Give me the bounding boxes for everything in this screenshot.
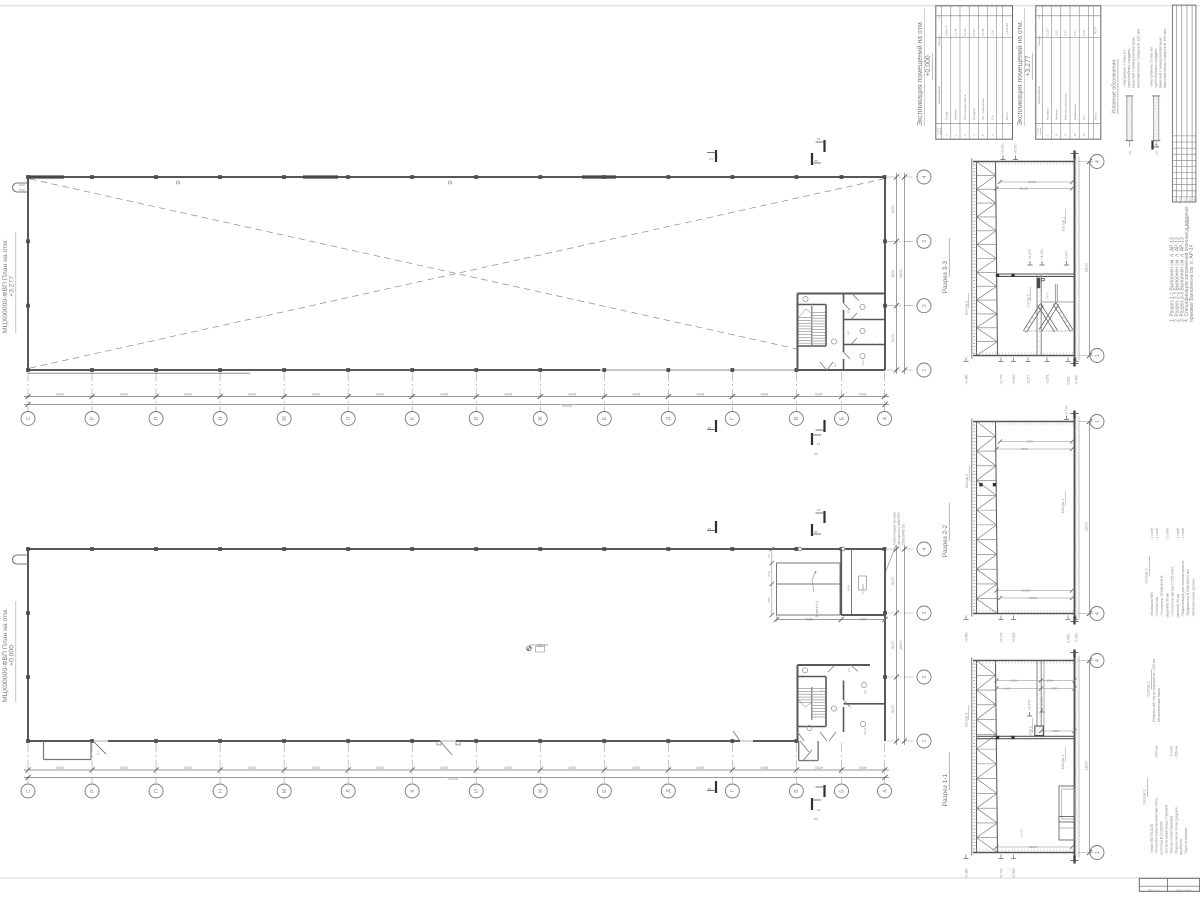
svg-text:0.000: 0.000 (1066, 634, 1070, 642)
svg-text:Кол.уч: Кол.уч (1179, 197, 1181, 204)
svg-text:8.74: 8.74 (1064, 30, 1068, 36)
svg-text:Коридор: Коридор (1045, 108, 1049, 120)
svg-text:0.000: 0.000 (1065, 251, 1069, 260)
svg-text:Лестничная клетка: Лестничная клетка (963, 94, 967, 120)
svg-text:4: 4 (1095, 612, 1101, 615)
svg-text:6000: 6000 (56, 766, 64, 770)
svg-text:А: А (882, 789, 888, 793)
svg-text:6000: 6000 (504, 766, 512, 770)
svg-text:помещ.: помещ. (940, 127, 942, 135)
svg-text:4: 4 (922, 547, 928, 550)
svg-text:Н: Н (218, 789, 224, 793)
svg-text:1: 1 (1095, 354, 1101, 357)
svg-text:18000: 18000 (1084, 263, 1088, 273)
svg-text:2: 2 (922, 675, 928, 678)
svg-text:Д-6: Д-6 (863, 689, 867, 694)
svg-text:Экспликация помещений на отм.: Экспликация помещений на отм. (916, 20, 924, 126)
svg-text:- Сетка из арматурных стержней: - Сетка из арматурных стержней (1165, 805, 1169, 855)
svg-text:6000: 6000 (312, 766, 320, 770)
svg-text:18669: 18669 (1028, 596, 1037, 600)
svg-text:6000: 6000 (120, 766, 128, 770)
svg-text:Состав 3: Состав 3 (965, 301, 969, 315)
svg-text:120: 120 (1128, 150, 1132, 155)
svg-text:+5.770: +5.770 (999, 868, 1003, 878)
svg-text:Разрез 2-2: Разрез 2-2 (942, 524, 949, 557)
svg-text:Состав 1: Состав 1 (1062, 217, 1066, 231)
svg-text:- 1 слой: - 1 слой (1181, 528, 1185, 540)
svg-text:6000: 6000 (248, 766, 256, 770)
svg-text:9.12: 9.12 (1055, 30, 1059, 36)
svg-text:билд п чтырь: билд п чтырь (1175, 889, 1192, 893)
svg-text:11: 11 (1082, 133, 1086, 136)
svg-text:6000: 6000 (184, 766, 192, 770)
svg-text:6000: 6000 (696, 766, 704, 770)
svg-text:Пом.4: Пом.4 (861, 358, 865, 366)
svg-text:Состав 3: Состав 3 (1145, 569, 1149, 584)
svg-text:Состав 1: Состав 1 (1061, 499, 1065, 513)
svg-text:+5.500: +5.500 (1012, 632, 1016, 642)
svg-text:+9.360: +9.360 (964, 868, 968, 878)
svg-text:18000: 18000 (899, 640, 903, 650)
svg-text:4000: 4000 (815, 392, 823, 396)
svg-text:А: А (882, 416, 888, 420)
svg-text:Д-2: Д-2 (846, 330, 850, 335)
svg-text:- Геотекстиль: - Геотекстиль (1155, 597, 1159, 618)
svg-text:Д-4: Д-4 (819, 687, 823, 692)
svg-text:4: 4 (1095, 659, 1101, 662)
svg-text:22748: 22748 (1021, 589, 1030, 593)
svg-text:13.49: 13.49 (954, 28, 958, 36)
svg-text:Б: Б (839, 789, 845, 793)
svg-text:+1.051: +1.051 (1045, 374, 1049, 384)
svg-text:17285: 17285 (1028, 845, 1037, 849)
svg-text:К: К (410, 417, 416, 420)
svg-text:- Пленка полиэтиленовая: - Пленка полиэтиленовая (1169, 816, 1173, 855)
svg-text:4000: 4000 (859, 617, 866, 621)
svg-text:100: 100 (1155, 150, 1159, 155)
svg-text:+5.770: +5.770 (999, 632, 1003, 642)
svg-text:6962: 6962 (1052, 729, 1059, 733)
svg-text:+5.770: +5.770 (999, 374, 1003, 384)
svg-text:П-3300: П-3300 (861, 584, 865, 594)
svg-text:6000: 6000 (568, 392, 576, 396)
svg-text:6000: 6000 (440, 766, 448, 770)
svg-text:2000: 2000 (767, 571, 771, 577)
svg-text:+5.500: +5.500 (1012, 374, 1016, 384)
svg-text:Подп: Подп (1194, 197, 1196, 203)
svg-text:6000: 6000 (632, 766, 640, 770)
svg-text:наполнителем толщиной 120 мм: наполнителем толщиной 120 мм (1135, 29, 1140, 88)
svg-text:18000: 18000 (1084, 761, 1088, 771)
svg-text:К: К (410, 789, 416, 792)
svg-text:Подп. и дата: Подп. и дата (1186, 216, 1190, 232)
svg-text:0.000: 0.000 (1065, 405, 1069, 414)
svg-text:(нижний) 50 мм: (нижний) 50 мм (1176, 593, 1180, 617)
svg-text:- 1 слой: - 1 слой (1155, 528, 1159, 540)
svg-text:1080.74: 1080.74 (945, 25, 949, 36)
svg-text:80000: 80000 (448, 776, 458, 780)
svg-text:6000: 6000 (184, 392, 192, 396)
svg-text:Состав 2: Состав 2 (1026, 294, 1030, 307)
svg-text:Номер: Номер (1037, 127, 1039, 135)
svg-text:-1.051: -1.051 (1040, 697, 1044, 707)
svg-text:Б: Б (839, 416, 845, 420)
svg-text:1850: 1850 (767, 597, 771, 603)
svg-text:+0.000: +0.000 (925, 55, 932, 76)
svg-text:Склад: Склад (945, 111, 949, 120)
svg-text:Состав 1: Состав 1 (1143, 790, 1147, 805)
svg-text:1: 1 (922, 739, 928, 742)
svg-text:Разрез 1-1: Разрез 1-1 (942, 773, 949, 806)
svg-text:6000: 6000 (376, 766, 384, 770)
svg-text:+3.277: +3.277 (1028, 249, 1032, 260)
svg-text:7560: 7560 (1010, 679, 1017, 683)
svg-text:6000: 6000 (632, 392, 640, 396)
svg-text:Д-1: Д-1 (96, 750, 100, 755)
svg-text:Лист: Лист (1185, 198, 1187, 203)
svg-text:+4.500: +4.500 (1014, 143, 1018, 154)
svg-text:6000: 6000 (891, 577, 895, 585)
svg-text:крупности): крупности) (1179, 839, 1183, 855)
svg-text:Номер: Номер (937, 127, 939, 135)
svg-text:Пом.6: Пом.6 (863, 727, 867, 735)
svg-text:И: И (474, 416, 480, 420)
svg-text:Состав 3: Состав 3 (965, 474, 969, 488)
svg-text:+9.360: +9.360 (964, 374, 968, 384)
svg-text:6000: 6000 (696, 392, 704, 396)
svg-text:6575: 6575 (1003, 687, 1010, 691)
svg-text:- 200 мм: - 200 мм (1174, 745, 1178, 759)
svg-text:Изм: Изм (1175, 198, 1177, 203)
svg-text:Итого: Итого (1005, 112, 1009, 120)
svg-text:Д-3: Д-3 (833, 362, 837, 367)
svg-text:9118: 9118 (1021, 447, 1028, 451)
svg-text:4000: 4000 (859, 392, 867, 396)
svg-text:+3.277: +3.277 (8, 276, 15, 297)
svg-text:Наименование: Наименование (1037, 85, 1041, 104)
svg-text:Состав 1: Состав 1 (1061, 755, 1065, 769)
svg-text:Герметизация проема: Герметизация проема (893, 512, 897, 545)
svg-text:- 2 слоя: - 2 слоя (1169, 746, 1173, 758)
svg-text:тип 02: тип 02 (1020, 828, 1024, 837)
svg-text:помещ.: помещ. (1040, 127, 1042, 135)
svg-text:1436.39: 1436.39 (1005, 23, 1009, 34)
svg-text:10: 10 (1073, 133, 1077, 137)
svg-text:М: М (282, 416, 288, 420)
svg-text:Н: Н (218, 416, 224, 420)
svg-text:Кол.: Кол. (939, 14, 941, 19)
svg-text:- Металлическая балка: - Металлическая балка (1157, 688, 1161, 724)
svg-text:Е: Е (602, 789, 608, 793)
svg-text:3: 3 (922, 240, 928, 243)
svg-text:С: С (26, 416, 32, 420)
svg-text:- Железобетонная монолитная пл: - Железобетонная монолитная плита (1155, 798, 1159, 855)
svg-text:- Утеплитель Экстра У=100 кг/м: - Утеплитель Экстра У=100 кг/м3, (1171, 566, 1175, 617)
svg-text:- Утеплитель ТЕХНОРУФ В,: - Утеплитель ТЕХНОРУФ В, (1160, 575, 1164, 618)
svg-text:1.58: 1.58 (1082, 30, 1086, 36)
svg-text:- Подосыпка из песка (средней: - Подосыпка из песка (средней (1174, 807, 1178, 855)
svg-text:Площадь: Площадь (938, 35, 941, 46)
svg-text:Итого: Итого (1093, 112, 1097, 120)
svg-text:6000: 6000 (376, 392, 384, 396)
svg-text:6000: 6000 (891, 705, 895, 713)
svg-text:И: И (474, 789, 480, 793)
svg-text:Кабинет: Кабинет (954, 108, 958, 120)
svg-text:2: 2 (1155, 144, 1159, 146)
svg-text:Д-2: Д-2 (846, 308, 850, 313)
svg-text:80000: 80000 (562, 403, 572, 407)
svg-text:40.67: 40.67 (1093, 26, 1097, 34)
svg-text:6000: 6000 (440, 392, 448, 396)
svg-text:Состав 3: Состав 3 (965, 713, 969, 727)
svg-text:- Мембрана ПВХ: - Мембрана ПВХ (1150, 591, 1154, 617)
svg-text:В: В (794, 789, 800, 793)
svg-text:6000: 6000 (120, 392, 128, 396)
svg-text:4000: 4000 (859, 766, 867, 770)
svg-text:- Грунт основания: - Грунт основания (1184, 827, 1188, 855)
svg-text:- Профнастил Н 60х845х0.8 мм: - Профнастил Н 60х845х0.8 мм (1186, 569, 1190, 618)
svg-text:1.58: 1.58 (990, 30, 994, 36)
svg-text:(верхний) 50 мм: (верхний) 50 мм (1165, 592, 1169, 617)
svg-text:4: 4 (922, 175, 928, 178)
svg-text:Ж: Ж (538, 416, 544, 421)
svg-text:4: 4 (1095, 160, 1101, 163)
svg-text:6000: 6000 (805, 617, 812, 621)
svg-text:22748: 22748 (1019, 187, 1028, 191)
svg-text:- 1 слой: - 1 слой (1150, 528, 1154, 540)
svg-text:6000: 6000 (56, 392, 64, 396)
svg-text:-0.450: -0.450 (1074, 375, 1078, 384)
svg-text:Разрез 3-3: Разрез 3-3 (942, 260, 949, 293)
svg-text:4111: 4111 (1027, 440, 1034, 444)
svg-text:Площадь: Площадь (1038, 35, 1041, 46)
svg-text:Коридор: Коридор (972, 108, 976, 120)
svg-text:П: П (154, 416, 160, 420)
svg-text:Кабинет: Кабинет (1055, 108, 1059, 120)
svg-text:18000: 18000 (899, 269, 903, 279)
svg-text:18000: 18000 (1084, 522, 1088, 532)
svg-text:- 200 мм: - 200 мм (1155, 745, 1159, 759)
svg-text:+5.500: +5.500 (1012, 868, 1016, 878)
svg-text:1: 1 (1095, 851, 1101, 854)
svg-text:+3.277: +3.277 (1026, 374, 1030, 384)
svg-text:8.74: 8.74 (1073, 30, 1077, 36)
svg-text:4633: 4633 (1046, 679, 1053, 683)
svg-text:Р: Р (90, 416, 96, 420)
svg-text:Д: Д (666, 789, 672, 793)
svg-text:в. уч мод: в. уч мод (1148, 889, 1159, 892)
svg-text:№док: №док (1189, 198, 1192, 204)
svg-text:С/у: С/у (990, 115, 994, 120)
svg-text:Ворота Н.1: Ворота Н.1 (815, 601, 819, 618)
svg-text:тип 2: тип 2 (1045, 292, 1049, 299)
svg-text:Кол.: Кол. (1039, 14, 1041, 19)
svg-text:+3.277: +3.277 (1025, 55, 1032, 76)
svg-text:12.52: 12.52 (972, 28, 976, 36)
svg-text:Е: Е (602, 416, 608, 420)
svg-text:Л: Л (346, 789, 352, 792)
svg-text:- Топинг RETFLOOR: - Топинг RETFLOOR (1150, 823, 1154, 855)
svg-text:6000: 6000 (504, 392, 512, 396)
svg-text:Наименование: Наименование (937, 85, 941, 104)
svg-text:0.000: 0.000 (1066, 376, 1070, 384)
svg-text:6000: 6000 (760, 392, 768, 396)
svg-text:6000: 6000 (891, 641, 895, 649)
svg-text:12.52: 12.52 (1045, 28, 1049, 36)
svg-text:Д-5: Д-5 (847, 667, 851, 672)
svg-text:6000: 6000 (891, 205, 895, 213)
svg-text:М: М (282, 789, 288, 793)
svg-text:Тех. помещение: Тех. помещение (981, 98, 985, 120)
svg-text:3: 3 (922, 611, 928, 614)
svg-text:150: 150 (767, 553, 771, 558)
svg-text:4500: 4500 (847, 584, 851, 591)
svg-text:Ж: Ж (538, 788, 544, 793)
svg-text:- Сборные ж/б плиты перекрытия: - Сборные ж/б плиты перекрытия - 220 мм (1152, 658, 1156, 724)
svg-text:15.35: 15.35 (963, 28, 967, 36)
svg-text:Р: Р (90, 789, 96, 793)
svg-text:13.49: 13.49 (981, 28, 985, 36)
svg-text:Д: Д (666, 416, 672, 420)
svg-text:1: 1 (1095, 420, 1101, 423)
svg-text:Г: Г (730, 789, 736, 792)
svg-text:6000: 6000 (891, 334, 895, 342)
svg-text:Условные обозначения: Условные обозначения (1112, 60, 1118, 114)
svg-text:проемов Выполнена см. л. АР-14: проемов Выполнена см. л. АР-14 (1189, 244, 1195, 322)
svg-text:Состав 2: Состав 2 (1029, 726, 1033, 739)
svg-text:6000: 6000 (891, 270, 895, 278)
svg-text:- Металлические прогоны: - Металлические прогоны (1191, 578, 1195, 618)
svg-text:+5.770: +5.770 (1001, 143, 1005, 154)
svg-text:4000: 4000 (815, 766, 823, 770)
svg-text:- 3 слоя: - 3 слоя (1165, 528, 1169, 540)
svg-text:18669: 18669 (1027, 180, 1036, 184)
svg-text:Комната персонала: Комната персонала (1064, 93, 1068, 120)
svg-text:2: 2 (922, 304, 928, 307)
svg-text:6000: 6000 (312, 392, 320, 396)
svg-text:1: 1 (922, 368, 928, 371)
svg-text:С: С (26, 789, 32, 793)
svg-text:С/у: С/у (1082, 115, 1086, 120)
svg-text:В: В (794, 416, 800, 420)
svg-text:(монорельс) АЛЮТЕХ: (монорельс) АЛЮТЕХ (897, 512, 901, 545)
svg-text:- Пароизоляция для плоских кро: - Пароизоляция для плоских кровель (1181, 560, 1185, 617)
svg-text:+0.000: +0.000 (8, 645, 15, 666)
svg-text:6000: 6000 (248, 392, 256, 396)
svg-text:2500х3480 (h): 2500х3480 (h) (902, 524, 906, 545)
svg-text:- 1 слой: - 1 слой (1176, 528, 1180, 540)
svg-text:+3.277: +3.277 (1028, 700, 1032, 711)
svg-text:из бетона В 15 (М200): из бетона В 15 (М200) (1160, 821, 1164, 855)
svg-text:П: П (154, 789, 160, 793)
svg-text:Раздевалка: Раздевалка (1073, 104, 1077, 120)
svg-text:Л: Л (346, 417, 352, 420)
svg-text:-0.450: -0.450 (1074, 633, 1078, 642)
svg-text:Состав 2: Состав 2 (1147, 682, 1151, 697)
svg-text:1628: 1628 (1051, 687, 1058, 691)
svg-text:+9.360: +9.360 (964, 632, 968, 642)
svg-text:Г: Г (730, 417, 736, 420)
svg-text:наполнителем толщиной 100 мм: наполнителем толщиной 100 мм (1162, 29, 1167, 88)
svg-text:Экспликация помещений на отм.: Экспликация помещений на отм. (1016, 20, 1024, 126)
svg-text:+4.051: +4.051 (1040, 249, 1044, 260)
svg-text:6000: 6000 (760, 766, 768, 770)
svg-text:6000: 6000 (568, 766, 576, 770)
